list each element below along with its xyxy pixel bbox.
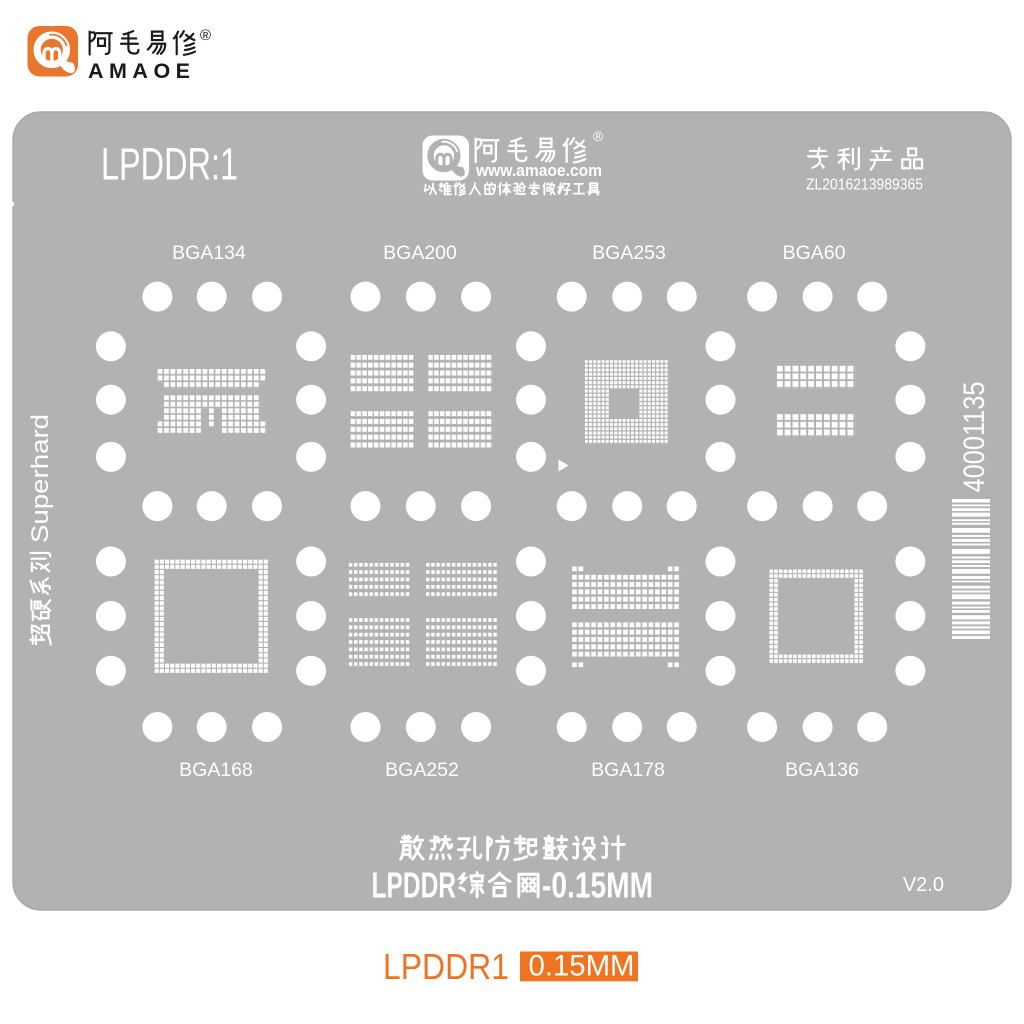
svg-text:0.15MM: 0.15MM: [529, 950, 635, 983]
svg-text:BGA134: BGA134: [172, 242, 246, 264]
svg-text:-0.15MM: -0.15MM: [542, 865, 653, 906]
svg-text:V2.0: V2.0: [903, 874, 944, 896]
svg-text:BGA253: BGA253: [592, 242, 666, 264]
svg-text:40001135: 40001135: [958, 382, 991, 493]
svg-text:LPDDR:1: LPDDR:1: [101, 139, 238, 190]
svg-text:ZL2016213989365: ZL2016213989365: [806, 177, 923, 194]
svg-text:BGA252: BGA252: [385, 759, 459, 781]
svg-text:BGA178: BGA178: [591, 759, 665, 781]
svg-text:BGA200: BGA200: [383, 242, 457, 264]
svg-text:BGA60: BGA60: [783, 242, 846, 264]
svg-text:AMAOE: AMAOE: [88, 59, 196, 83]
svg-text:®: ®: [593, 128, 604, 144]
svg-text:®: ®: [200, 27, 211, 44]
svg-text:www.amaoe.com: www.amaoe.com: [475, 162, 602, 180]
svg-text:Superhard: Superhard: [27, 414, 54, 543]
svg-text:LPDDR: LPDDR: [372, 865, 457, 906]
svg-text:BGA136: BGA136: [785, 759, 859, 781]
svg-text:LPDDR1: LPDDR1: [383, 946, 509, 987]
svg-text:BGA168: BGA168: [179, 759, 253, 781]
